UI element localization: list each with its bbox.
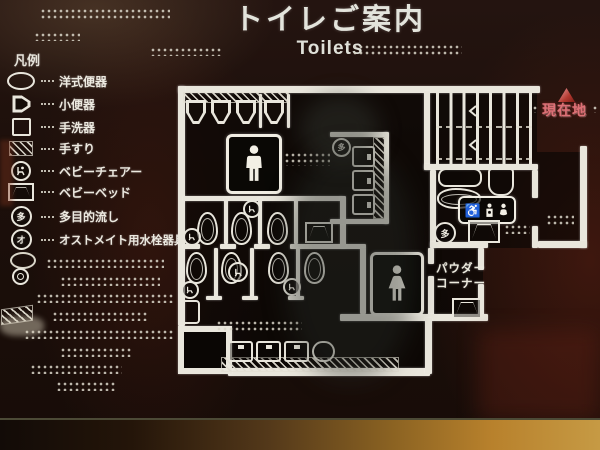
braille-strip xyxy=(546,214,574,226)
light-reflection xyxy=(478,330,598,420)
badge-char: オ xyxy=(16,233,25,246)
washbasin-icon xyxy=(180,300,200,324)
legend-item-multipurpose-sink: 多 多目的流し xyxy=(6,206,119,227)
baby-bed-icon xyxy=(6,183,36,201)
legend-label: 小便器 xyxy=(59,96,95,113)
baby-chair-icon xyxy=(283,278,301,296)
ramp-glyph xyxy=(2,306,32,324)
washbasin-icon xyxy=(352,146,375,167)
braille-strip xyxy=(36,293,174,303)
stair-line xyxy=(436,126,532,128)
baby-chair-icon xyxy=(243,200,261,218)
wall-segment xyxy=(428,276,434,318)
washbasin-icon xyxy=(6,118,36,136)
braille-strip xyxy=(60,347,132,357)
wall-segment xyxy=(254,244,270,249)
washbasin-icon xyxy=(284,341,309,362)
double-circle-glyph xyxy=(12,268,29,285)
multipurpose-sink-icon: 多 xyxy=(434,222,456,244)
legend-dash xyxy=(41,148,54,150)
western-toilet-icon xyxy=(304,252,325,284)
braille-strip xyxy=(60,276,160,286)
legend-label: 洋式便器 xyxy=(59,73,107,90)
wall-segment xyxy=(330,219,388,224)
stairs xyxy=(436,92,532,165)
stair-arrow-icon xyxy=(466,104,480,118)
legend-item-washbasin: 手洗器 xyxy=(6,118,95,136)
wall-segment xyxy=(183,196,342,201)
powder-corner-label: パウダー コーナー xyxy=(436,262,486,292)
multipurpose-sink-icon: 多 xyxy=(332,138,351,157)
stair-line xyxy=(436,158,532,160)
wall-segment xyxy=(330,132,388,137)
washbasin-icon xyxy=(256,341,281,362)
western-toilet-icon xyxy=(267,212,288,245)
legend-item-western-toilet: 洋式便器 xyxy=(6,72,107,90)
badge-char: 多 xyxy=(440,227,449,240)
wall-segment xyxy=(220,244,236,249)
washbasin-icon xyxy=(312,341,335,362)
room-fill xyxy=(537,152,583,244)
title-japanese: トイレご案内 xyxy=(180,0,480,38)
braille-strip xyxy=(52,311,148,321)
handrail-hatch xyxy=(374,138,384,218)
washbasin-icon xyxy=(352,170,375,191)
stall-divider xyxy=(214,248,218,298)
baby-chair-icon xyxy=(181,281,199,299)
legend-label: オストメイト用水栓器具 xyxy=(59,232,186,248)
braille-strip xyxy=(504,224,530,234)
wall-segment xyxy=(360,248,366,314)
powder-corner-line2: コーナー xyxy=(436,277,486,292)
washbasin-icon xyxy=(352,194,375,215)
wall-segment xyxy=(206,296,222,300)
wall-segment xyxy=(428,248,434,264)
wall-segment xyxy=(242,296,258,300)
legend-dash xyxy=(41,103,54,105)
wall-segment xyxy=(538,241,587,248)
legend-dash xyxy=(41,80,54,82)
baby-icon xyxy=(498,203,509,217)
washbasin-icon xyxy=(228,341,253,362)
stair-arrow-icon xyxy=(466,138,480,152)
wall-segment xyxy=(424,91,430,170)
badge-char: 多 xyxy=(16,210,25,223)
baby-chair-icon xyxy=(228,262,248,282)
wall-segment xyxy=(532,226,538,248)
legend-heading-label: 凡例 xyxy=(14,50,40,69)
wheelchair-icon: ♿ xyxy=(465,204,481,217)
baby-chair-icon xyxy=(6,161,36,181)
legend-label: ベビーチェアー xyxy=(59,163,142,180)
braille-strip xyxy=(216,320,302,332)
wall-segment xyxy=(532,170,538,198)
urinal-icon xyxy=(6,95,36,113)
stall-divider xyxy=(294,198,298,244)
braille-strip xyxy=(150,47,222,56)
baby-chair-icon xyxy=(183,228,201,246)
braille-strip xyxy=(40,8,170,20)
legend-label: 多目的流し xyxy=(59,208,119,225)
multipurpose-sink-icon: 多 xyxy=(6,206,36,227)
baby-bed-icon xyxy=(452,298,482,319)
ostomate-person-icon xyxy=(484,203,495,218)
badge-char: 多 xyxy=(338,142,346,153)
legend-label: 手洗器 xyxy=(59,119,95,136)
wall-below-sign xyxy=(0,418,600,450)
braille-strip xyxy=(284,152,330,166)
legend-label: ベビーベッド xyxy=(59,184,131,201)
western-toilet-icon xyxy=(6,72,36,90)
legend-item-baby-bed: ベビーベッド xyxy=(6,183,131,201)
legend-item-handrail: 手すり xyxy=(6,140,95,157)
legend-dash xyxy=(41,191,54,193)
legend-item-baby-chair: ベビーチェアー xyxy=(6,161,142,181)
mens-restroom-pictogram xyxy=(226,134,282,194)
legend-heading: 凡例 xyxy=(14,50,40,69)
braille-strip xyxy=(532,105,539,113)
legend-dash xyxy=(41,239,54,241)
braille-strip xyxy=(30,364,122,374)
changing-bed-icon xyxy=(438,168,482,187)
legend-dash xyxy=(41,126,54,128)
toilet-glyph-small xyxy=(10,252,36,269)
braille-strip xyxy=(352,44,462,56)
legend-item-ostomate: オ オストメイト用水栓器具 xyxy=(6,229,186,250)
legend-label: 手すり xyxy=(59,140,95,157)
handrail-icon xyxy=(6,142,36,155)
current-location-label: 現在地 xyxy=(542,100,587,120)
braille-strip xyxy=(592,105,599,113)
wall-segment xyxy=(384,132,389,224)
legend-dash xyxy=(41,216,54,218)
braille-strip xyxy=(46,258,164,268)
wall-segment xyxy=(288,296,304,300)
washbasin-icon xyxy=(488,168,514,196)
stall-divider xyxy=(250,248,254,298)
powder-corner-line1: パウダー xyxy=(436,262,486,277)
wall-segment xyxy=(425,318,432,374)
baby-bed-icon xyxy=(468,220,500,243)
legend-item-urinal: 小便器 xyxy=(6,95,95,113)
ostomate-icon: オ xyxy=(6,229,36,250)
womens-restroom-pictogram xyxy=(370,252,424,316)
stall-divider xyxy=(224,198,228,244)
braille-strip xyxy=(34,32,80,41)
toilet-guide-sign-photo: トイレご案内 Toilets 凡例 洋式便器 小便器 手洗器 手すり xyxy=(0,0,600,450)
braille-strip xyxy=(56,381,116,391)
legend-dash xyxy=(41,170,54,172)
wall-segment xyxy=(580,146,587,248)
western-toilet-icon xyxy=(186,252,207,284)
wall-segment xyxy=(290,244,366,249)
baby-bed-icon xyxy=(305,222,333,243)
braille-strip xyxy=(24,329,174,339)
